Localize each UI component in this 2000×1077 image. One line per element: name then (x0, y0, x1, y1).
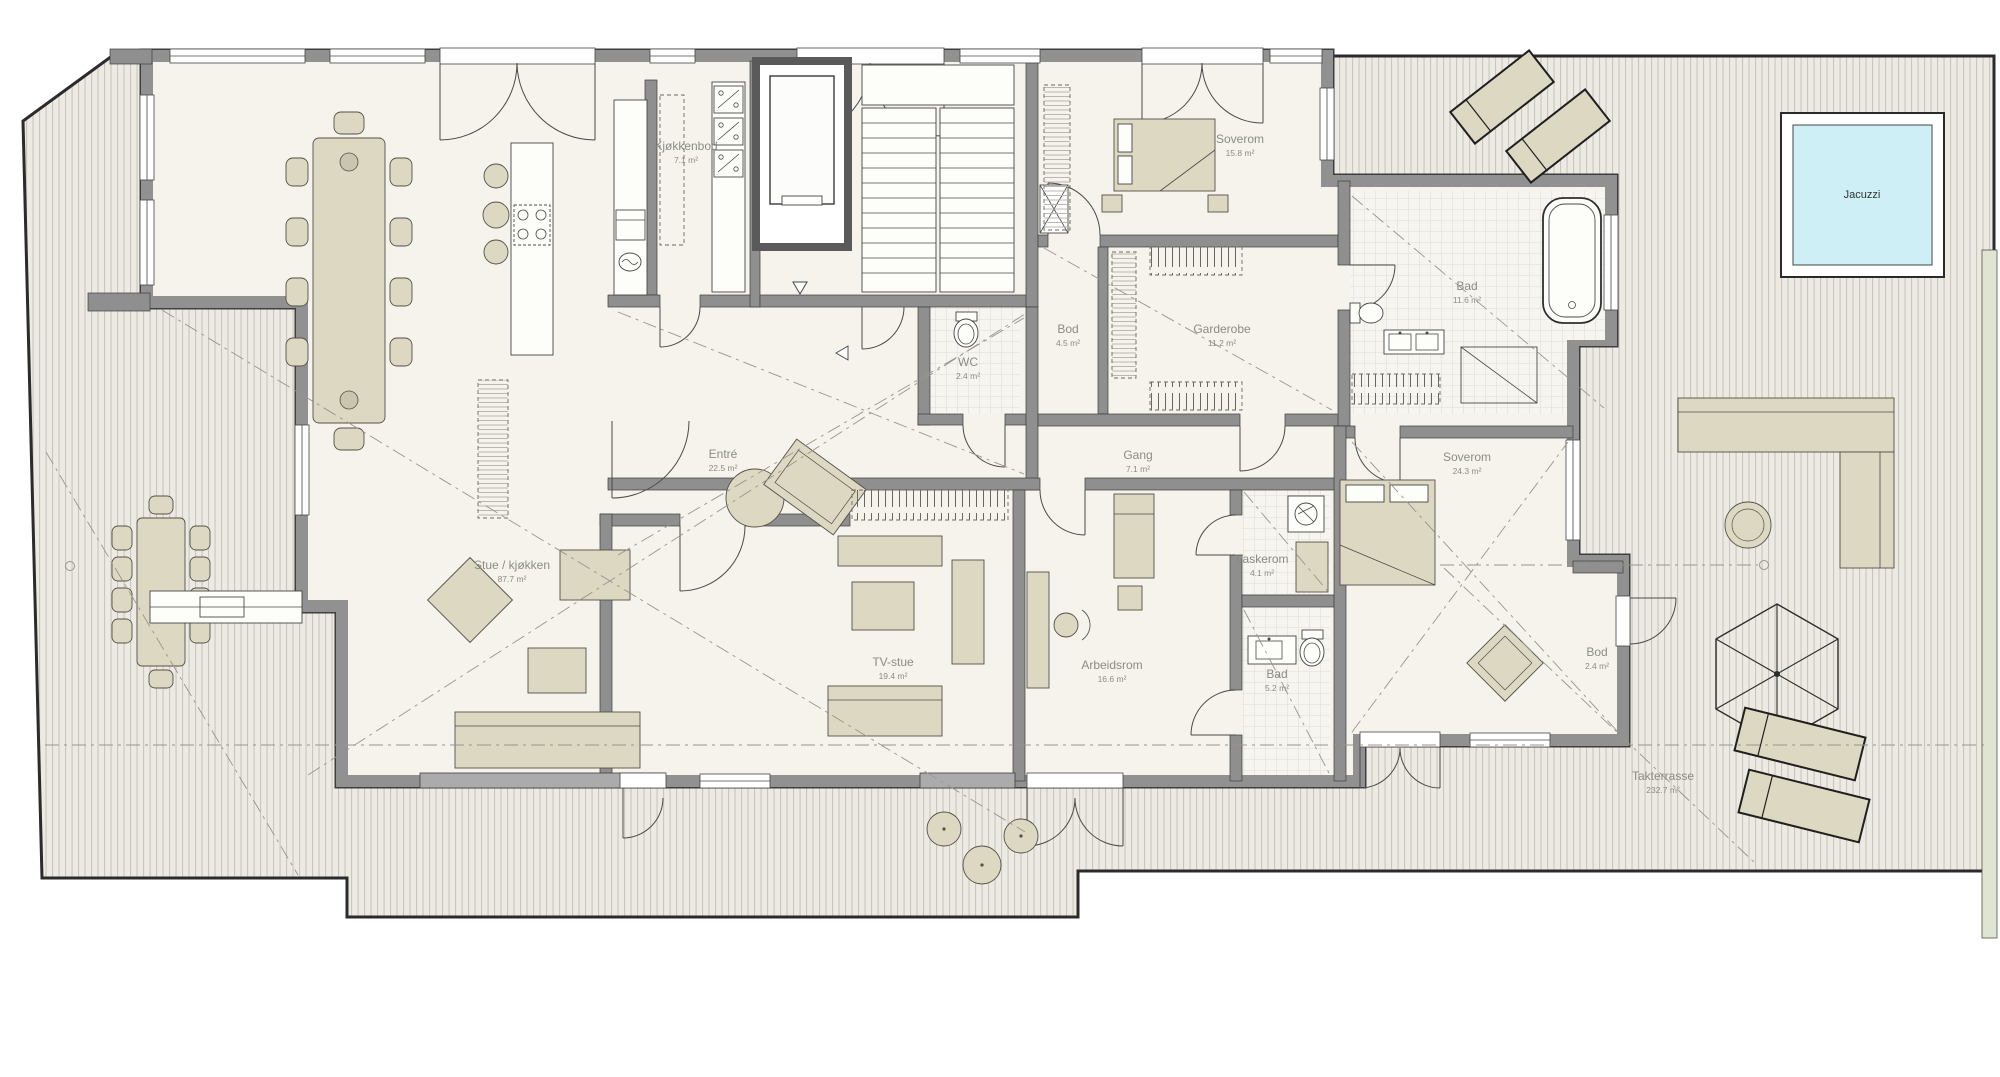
sideboard (952, 560, 984, 664)
washing-machine-icon (1288, 496, 1324, 532)
room-label-bod-2: Bod 2.4 m² (1585, 645, 1609, 671)
planting-strip (1982, 250, 1997, 938)
svg-text:Bad: Bad (1266, 667, 1287, 681)
room-label-bad-1: Bad 11.6 m² (1453, 279, 1481, 305)
svg-text:2.4 m²: 2.4 m² (956, 371, 980, 381)
svg-text:11.6 m²: 11.6 m² (1453, 295, 1481, 305)
room-label-wc: WC 2.4 m² (956, 355, 980, 381)
svg-text:Vaskerom: Vaskerom (1235, 552, 1288, 566)
svg-text:Takterrasse: Takterrasse (1632, 769, 1694, 783)
svg-text:Bad: Bad (1456, 279, 1477, 293)
toilet-icon (1300, 630, 1324, 666)
table (852, 582, 914, 630)
svg-text:87.7 m²: 87.7 m² (498, 574, 527, 584)
room-label-gang: Gang 7.1 m² (1123, 448, 1152, 474)
bench (1102, 195, 1122, 212)
svg-text:4.1 m²: 4.1 m² (1250, 568, 1274, 578)
svg-text:Garderobe: Garderobe (1193, 322, 1251, 336)
svg-text:Bod: Bod (1586, 645, 1607, 659)
sliding-door (920, 773, 1015, 788)
desk (1027, 572, 1049, 688)
svg-text:Gang: Gang (1123, 448, 1152, 462)
svg-text:24.3 m²: 24.3 m² (1453, 466, 1482, 476)
bathtub (1543, 198, 1601, 323)
svg-text:Stue / kjøkken: Stue / kjøkken (474, 558, 550, 572)
laundry-counter (1296, 542, 1328, 592)
room-label-bod-1: Bod 4.5 m² (1056, 322, 1080, 348)
bench (1208, 195, 1228, 212)
toilet-icon (1350, 303, 1383, 323)
wardrobe (1044, 85, 1070, 230)
shelf-unit (478, 380, 508, 518)
wc-toilet-icon (954, 312, 978, 347)
svg-text:5.2 m²: 5.2 m² (1265, 683, 1289, 693)
sofa (838, 536, 942, 566)
svg-text:Kjøkkenbod: Kjøkkenbod (654, 139, 717, 153)
svg-text:232.7 m²: 232.7 m² (1646, 785, 1680, 795)
svg-text:Arbeidsrom: Arbeidsrom (1081, 658, 1142, 672)
svg-text:TV-stue: TV-stue (872, 655, 914, 669)
svg-text:Soverom: Soverom (1443, 450, 1491, 464)
daybed (1114, 494, 1154, 578)
svg-text:11.2 m²: 11.2 m² (1208, 338, 1236, 348)
sofa (828, 686, 942, 736)
hall-wardrobe (852, 490, 1008, 520)
jacuzzi-label: Jacuzzi (1844, 189, 1881, 201)
side-table (1118, 586, 1142, 610)
floor-plan-canvas: Kjøkkenbod 7.1 m² Soverom 15.8 m² Bad 11… (0, 0, 2000, 1077)
sofa (455, 712, 640, 768)
svg-text:16.6 m²: 16.6 m² (1098, 674, 1127, 684)
svg-text:Soverom: Soverom (1216, 132, 1264, 146)
desk-chair (1054, 613, 1078, 637)
coffee-table (528, 648, 586, 693)
svg-text:WC: WC (958, 355, 978, 369)
dining-table (313, 138, 385, 423)
svg-text:7.1 m²: 7.1 m² (674, 155, 698, 165)
kitchen-counter (614, 100, 647, 295)
tall-cabinets (712, 82, 745, 292)
terrace-wing-wall (88, 293, 150, 311)
floor-plan-drawing: Kjøkkenbod 7.1 m² Soverom 15.8 m² Bad 11… (0, 0, 2000, 1077)
vanity-sink (1248, 636, 1296, 664)
svg-text:2.4 m²: 2.4 m² (1585, 661, 1609, 671)
bar-stool (484, 164, 508, 188)
svg-text:7.1 m²: 7.1 m² (1126, 464, 1150, 474)
svg-text:Jacuzzi: Jacuzzi (1844, 189, 1881, 201)
svg-text:19.4 m²: 19.4 m² (879, 671, 908, 681)
room-label-bad-2: Bad 5.2 m² (1265, 667, 1289, 693)
svg-text:22.5 m²: 22.5 m² (709, 463, 738, 473)
double-sink (1384, 330, 1444, 354)
bar-stool (483, 202, 509, 228)
wardrobe-row (1352, 374, 1440, 404)
svg-text:Entré: Entré (709, 447, 738, 461)
svg-text:4.5 m²: 4.5 m² (1056, 338, 1080, 348)
svg-text:15.8 m²: 15.8 m² (1226, 148, 1255, 158)
kitchen-island (511, 143, 553, 355)
svg-text:Bod: Bod (1057, 322, 1078, 336)
room-label-entre: Entré 22.5 m² (709, 447, 738, 473)
bar-stool (484, 240, 508, 264)
